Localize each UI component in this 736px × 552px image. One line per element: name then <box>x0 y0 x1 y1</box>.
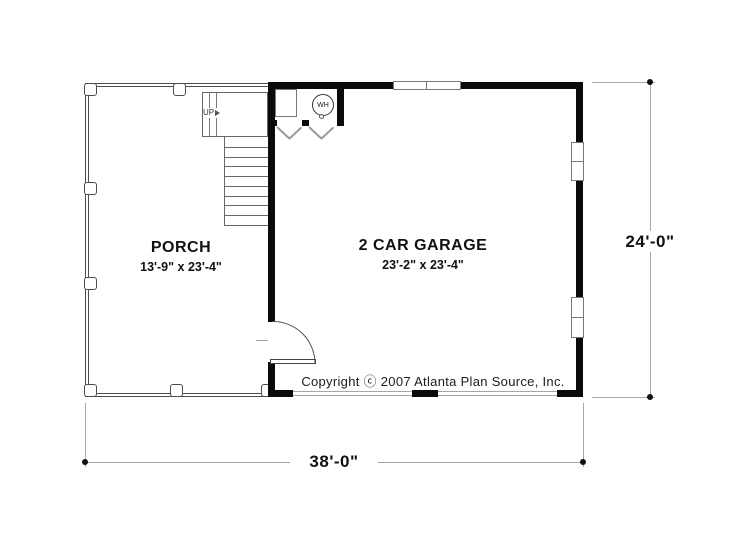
overall-height-dimension: 24'-0" <box>610 232 690 252</box>
closet-wall-right <box>337 89 344 126</box>
garage-wall-right <box>576 181 583 297</box>
porch-step-line <box>256 340 268 341</box>
water-heater-label: WH <box>317 102 329 109</box>
garage-wall-bottom <box>557 390 583 397</box>
garage-wall-top <box>268 82 393 89</box>
room-name: PORCH <box>106 239 256 257</box>
stair-tread <box>224 176 268 177</box>
dim-extension-line <box>592 397 655 398</box>
dim-line-height <box>650 252 651 397</box>
overall-width-dimension: 38'-0" <box>290 452 378 472</box>
garage-door-opening <box>293 395 412 396</box>
dim-endpoint-dot <box>580 459 586 465</box>
garage-wall-bottom <box>268 390 293 397</box>
water-heater-icon: WH <box>312 94 334 116</box>
closet-equipment <box>275 89 297 117</box>
closet-door-swing <box>320 127 334 140</box>
garage-door-opening <box>438 391 557 392</box>
garage-wall-right <box>576 338 583 397</box>
window-mullion <box>426 81 427 90</box>
closet-wall-stub <box>268 120 277 126</box>
stair-up-label: UP <box>203 108 220 118</box>
window-mullion <box>571 161 584 162</box>
porch-post <box>84 277 97 290</box>
stair-tread <box>224 157 268 158</box>
garage-wall-bottom <box>412 390 438 397</box>
porch-post <box>173 83 186 96</box>
garage-wall-top <box>461 82 583 89</box>
stair-tread <box>224 225 268 226</box>
stair-tread <box>224 205 268 206</box>
dim-extension-line <box>85 403 86 467</box>
garage-door-opening <box>293 391 412 392</box>
room-size: 13'-9" x 23'-4" <box>106 260 256 274</box>
stair-tread <box>224 166 268 167</box>
up-arrow-icon <box>215 110 220 116</box>
dim-endpoint-dot <box>82 459 88 465</box>
porch-post <box>84 384 97 397</box>
up-text: UP <box>203 109 214 117</box>
room-name: 2 CAR GARAGE <box>328 237 518 255</box>
garage-wall-left <box>268 82 275 322</box>
dim-line-width <box>85 462 302 463</box>
dim-endpoint-dot <box>647 394 653 400</box>
window <box>393 81 461 90</box>
stair-tread <box>224 196 268 197</box>
copyright-text: Copyright ⓒ 2007 Atlanta Plan Source, In… <box>293 371 573 390</box>
porch-wall-left-inner <box>88 86 89 394</box>
porch-wall-left-outer <box>85 83 86 397</box>
closet-door-swing <box>288 127 302 140</box>
stair-tread <box>224 147 268 148</box>
garage-label: 2 CAR GARAGE 23'-2" x 23'-4" <box>328 237 518 272</box>
water-heater-valve-icon <box>319 114 324 119</box>
floor-plan-canvas: UP WH <box>0 0 736 552</box>
garage-wall-right <box>576 82 583 142</box>
door-swing-arc <box>272 321 316 364</box>
porch-post <box>84 83 97 96</box>
dim-extension-line <box>592 82 655 83</box>
window-mullion <box>571 317 584 318</box>
dim-line-height <box>650 82 651 231</box>
stair-side-line <box>224 137 225 225</box>
dim-extension-line <box>583 403 584 467</box>
porch-post <box>84 182 97 195</box>
dim-line-width <box>366 462 583 463</box>
porch-label: PORCH 13'-9" x 23'-4" <box>106 239 256 274</box>
garage-door-opening <box>438 395 557 396</box>
porch-post <box>170 384 183 397</box>
dim-endpoint-dot <box>647 79 653 85</box>
stair-tread <box>224 186 268 187</box>
room-size: 23'-2" x 23'-4" <box>328 258 518 272</box>
closet-wall-stub <box>302 120 309 126</box>
stair-tread <box>224 215 268 216</box>
